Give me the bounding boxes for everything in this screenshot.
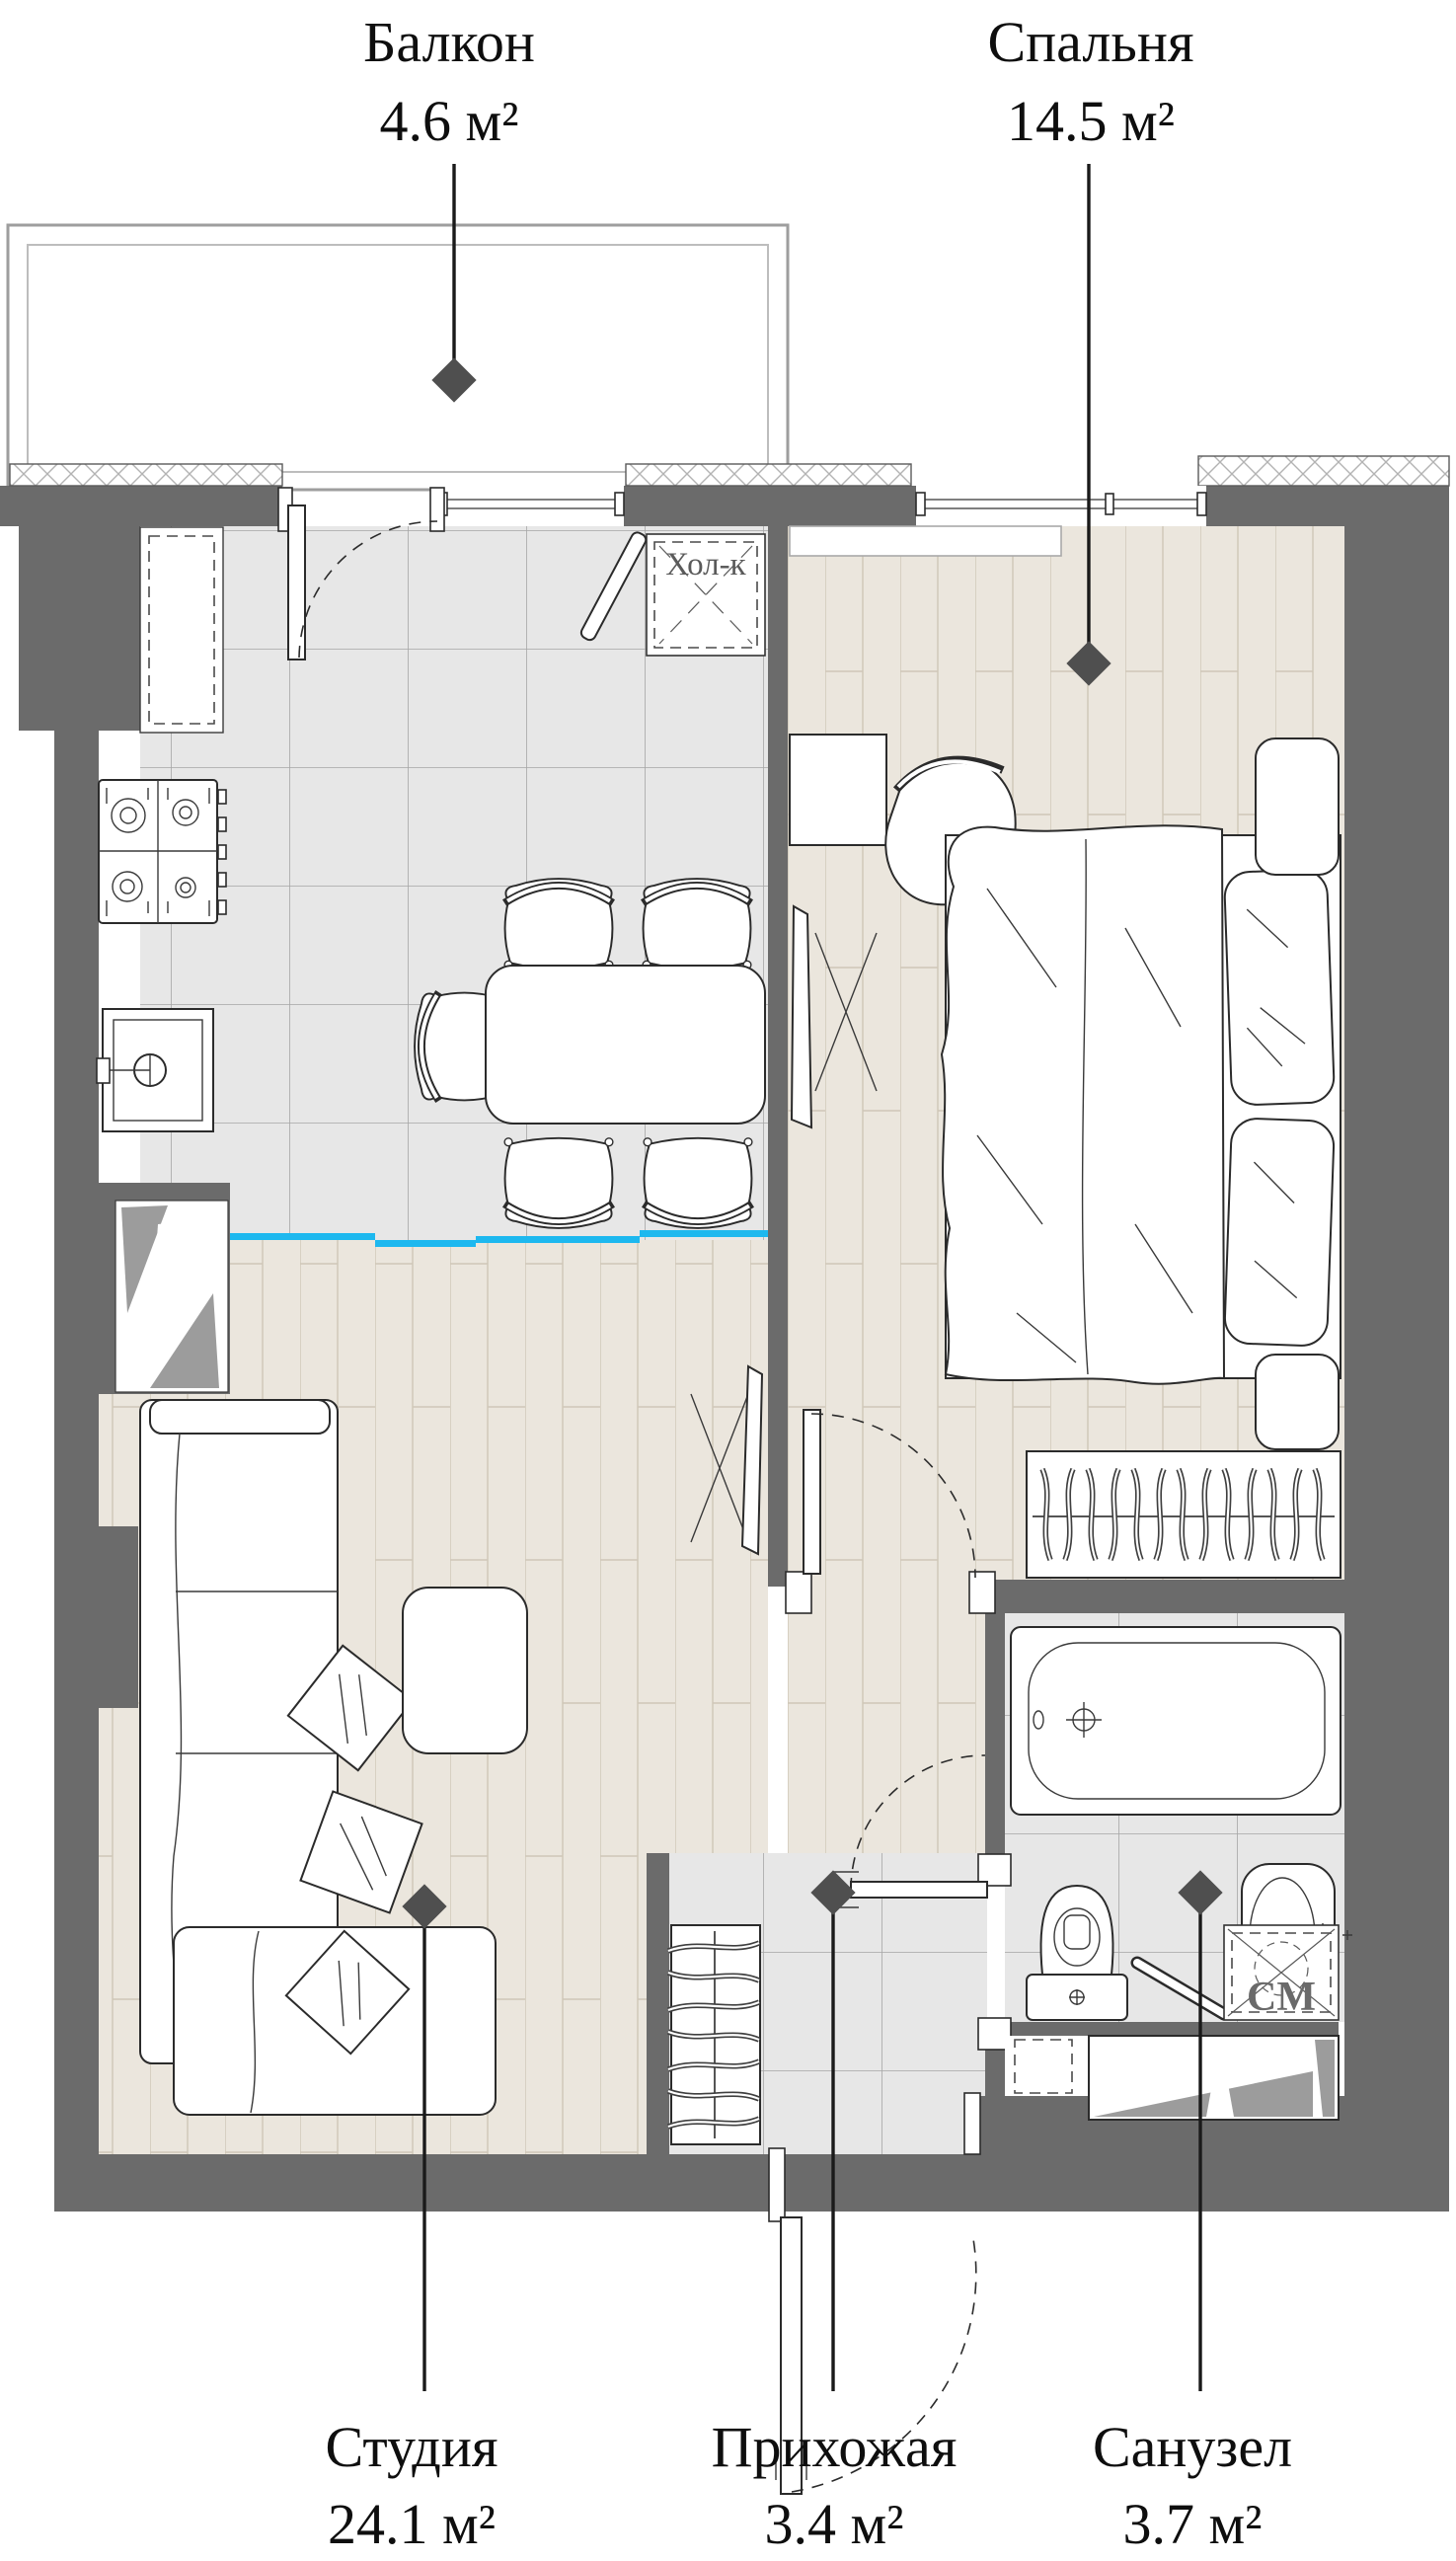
washing-machine: СМ — [1224, 1925, 1339, 2020]
balcony-label: Балкон — [363, 10, 535, 74]
stove — [99, 780, 226, 923]
nightstand-bottom — [1256, 1355, 1339, 1449]
bathroom-area: 3.7 м² — [1122, 2492, 1262, 2556]
hallway-label: Прихожая — [712, 2415, 958, 2479]
nightstand-top — [1256, 738, 1339, 875]
coffee-table — [403, 1588, 527, 1753]
balcony-area: 4.6 м² — [379, 89, 518, 153]
kitchen-window — [438, 486, 624, 526]
window-sill-console — [790, 526, 1061, 556]
fridge-label: Хол-к — [665, 547, 746, 582]
kitchen-sink — [97, 1009, 213, 1131]
kitchen-counter — [140, 527, 223, 733]
studio-area: 24.1 м² — [328, 2492, 496, 2556]
hallway-closet — [668, 1925, 760, 2144]
bathroom-label: Санузел — [1093, 2415, 1292, 2479]
bathtub — [1011, 1627, 1341, 1815]
fridge: Хол-к — [647, 534, 765, 656]
studio-label: Студия — [325, 2415, 498, 2479]
floor-plan-page: Хол-к — [0, 0, 1456, 2561]
kitchen-cabinet — [98, 1183, 230, 1394]
bedroom-wardrobe — [1027, 1451, 1341, 1578]
balcony-outline — [8, 225, 788, 490]
hallway-area: 3.4 м² — [764, 2492, 903, 2556]
bedroom-dresser — [790, 735, 886, 845]
bedroom-area: 14.5 м² — [1007, 89, 1175, 153]
dining-table — [486, 966, 765, 1124]
washing-machine-label: СМ — [1247, 1975, 1316, 2020]
bed — [942, 825, 1341, 1383]
bedroom-label: Спальня — [987, 10, 1193, 74]
